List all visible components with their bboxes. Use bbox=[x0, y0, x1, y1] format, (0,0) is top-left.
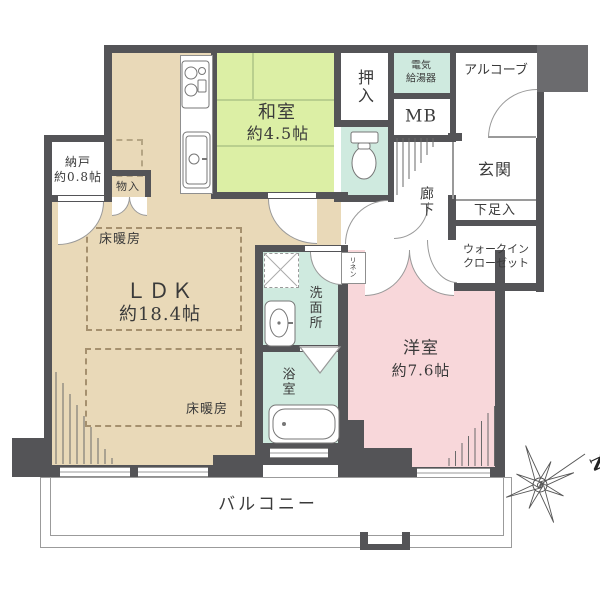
wall bbox=[334, 53, 341, 127]
entrance-door-arc bbox=[488, 89, 537, 138]
hatch-lines bbox=[53, 368, 115, 466]
label-yukadanbo-2: 床暖房 bbox=[186, 402, 228, 418]
compass-icon: N bbox=[487, 437, 600, 533]
label-washitsu-size: 約4.5帖 bbox=[247, 124, 309, 144]
wall bbox=[536, 92, 544, 292]
wall bbox=[448, 133, 462, 141]
label-nando: 納戸 約0.8帖 bbox=[54, 155, 102, 185]
label-getabako: 下足入 bbox=[474, 203, 516, 219]
wall bbox=[104, 45, 538, 53]
nando-size: 約0.8帖 bbox=[54, 170, 102, 184]
wall bbox=[44, 135, 112, 142]
stove-icon bbox=[181, 60, 211, 110]
label-kyutoki: 電気 給湯器 bbox=[406, 61, 436, 86]
floor-plan: N 納戸 約0.8帖 物入 床暖房 床暖房 ＬＤＫ 約18.4帖 和室 約4.5… bbox=[0, 0, 600, 600]
label-monoire: 物入 bbox=[116, 180, 140, 194]
label-genkan: 玄関 bbox=[478, 160, 512, 180]
label-mb: MB bbox=[405, 106, 437, 127]
wall bbox=[388, 93, 456, 99]
label-rouka: 廊下 bbox=[416, 186, 436, 218]
bathtub-icon bbox=[268, 404, 340, 444]
folding-door bbox=[300, 347, 340, 374]
wall-column bbox=[537, 45, 588, 92]
balcony-partition-wall bbox=[12, 438, 52, 477]
kyutoki-line2: 給湯器 bbox=[406, 73, 436, 84]
label-ldk-name: ＬＤＫ bbox=[126, 278, 195, 304]
wall bbox=[448, 220, 544, 226]
label-yoshitsu-name: 洋室 bbox=[403, 338, 439, 359]
getabako-line bbox=[456, 199, 536, 201]
label-wic: ウォークイン クローゼット bbox=[463, 242, 529, 270]
entrance-door-leaf bbox=[488, 136, 536, 138]
wall bbox=[364, 448, 412, 477]
wall bbox=[388, 53, 394, 127]
washer-space-cross bbox=[264, 253, 297, 286]
door-opening bbox=[268, 193, 316, 198]
label-oshiire: 押入 bbox=[352, 69, 376, 105]
genkan-step-line bbox=[452, 142, 454, 199]
tatami-line bbox=[217, 99, 334, 101]
wall bbox=[450, 53, 456, 142]
window bbox=[138, 467, 208, 477]
label-ldk-size: 約18.4帖 bbox=[119, 304, 201, 327]
wic-line2: クローゼット bbox=[463, 256, 529, 269]
wic-line1: ウォークイン bbox=[463, 242, 529, 255]
wall bbox=[145, 170, 151, 197]
wall bbox=[44, 135, 52, 477]
balcony-divider bbox=[360, 544, 410, 550]
door-arc bbox=[345, 200, 388, 244]
wall bbox=[213, 455, 262, 477]
label-linen: リネン bbox=[348, 257, 358, 278]
wall bbox=[104, 45, 112, 202]
label-yokushitsu: 浴室 bbox=[278, 367, 297, 397]
door-opening bbox=[58, 196, 104, 201]
nando-name: 納戸 bbox=[65, 155, 91, 169]
label-washitsu-name: 和室 bbox=[258, 102, 296, 125]
tatami-line bbox=[217, 145, 334, 147]
label-yoshitsu-size: 約7.6帖 bbox=[392, 362, 451, 381]
label-yukadanbo-1: 床暖房 bbox=[99, 232, 141, 248]
kyutoki-line1: 電気 bbox=[411, 61, 431, 72]
window bbox=[60, 467, 130, 477]
washbasin-icon bbox=[264, 300, 296, 347]
door-opening bbox=[305, 246, 341, 251]
label-balcony: バルコニー bbox=[218, 494, 318, 515]
compass-north-label: N bbox=[584, 453, 600, 476]
kitchen-sink-icon bbox=[182, 131, 212, 189]
wall bbox=[334, 120, 394, 127]
tatami-line bbox=[252, 53, 254, 100]
toilet-icon bbox=[347, 131, 383, 189]
window bbox=[270, 448, 328, 458]
label-alcove: アルコーブ bbox=[464, 63, 528, 79]
label-senmenjo: 洗面所 bbox=[305, 286, 324, 331]
